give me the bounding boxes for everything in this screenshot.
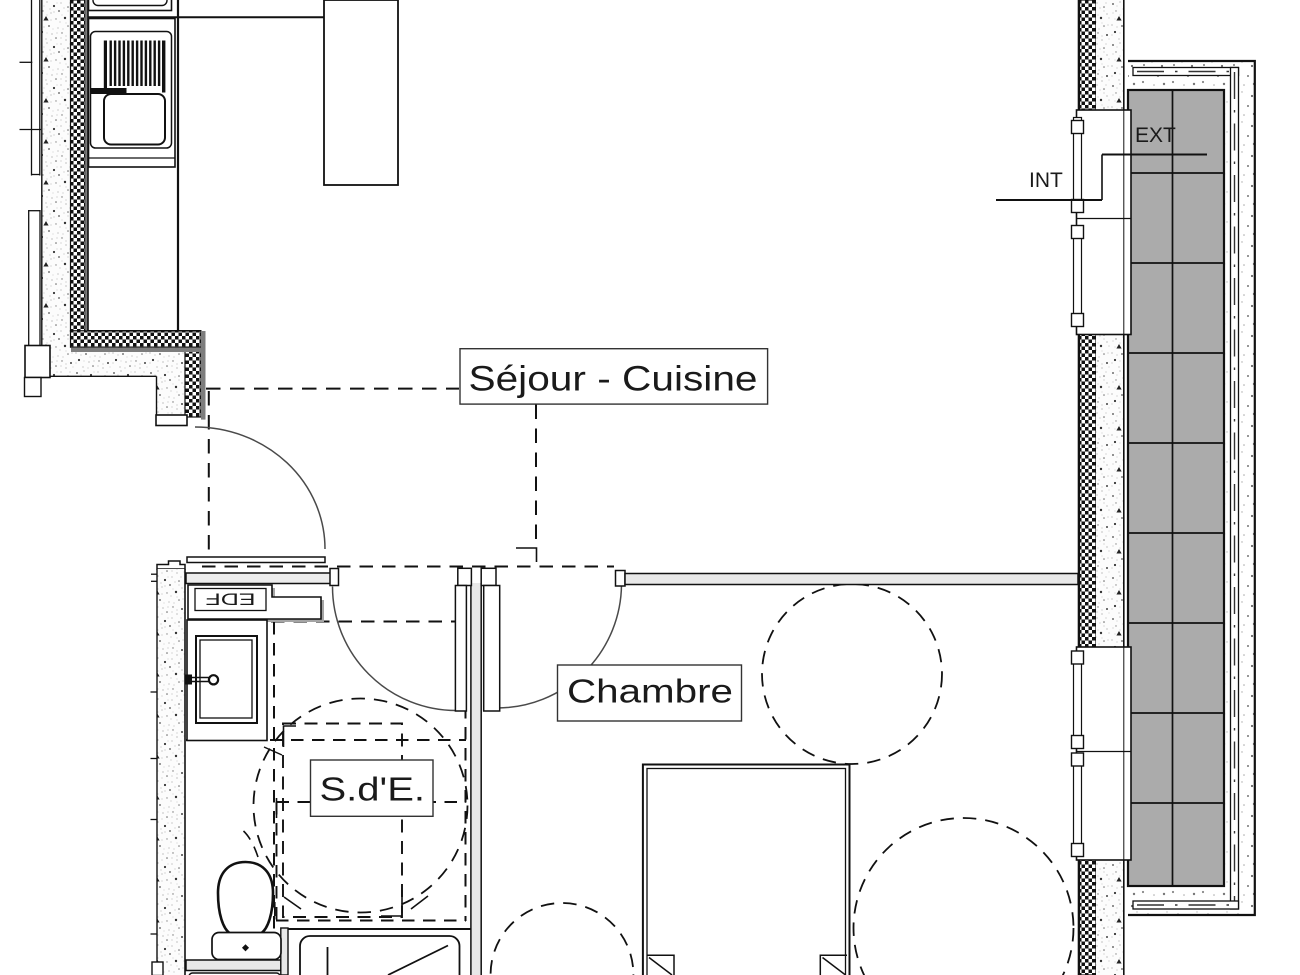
svg-text:Séjour - Cuisine: Séjour - Cuisine [469, 360, 758, 399]
svg-text:Chambre: Chambre [567, 673, 733, 710]
svg-text:EDF: EDF [206, 590, 256, 609]
svg-text:S.d'E.: S.d'E. [320, 771, 426, 808]
svg-text:INT: INT [1029, 169, 1063, 192]
svg-text:EXT: EXT [1135, 124, 1176, 147]
